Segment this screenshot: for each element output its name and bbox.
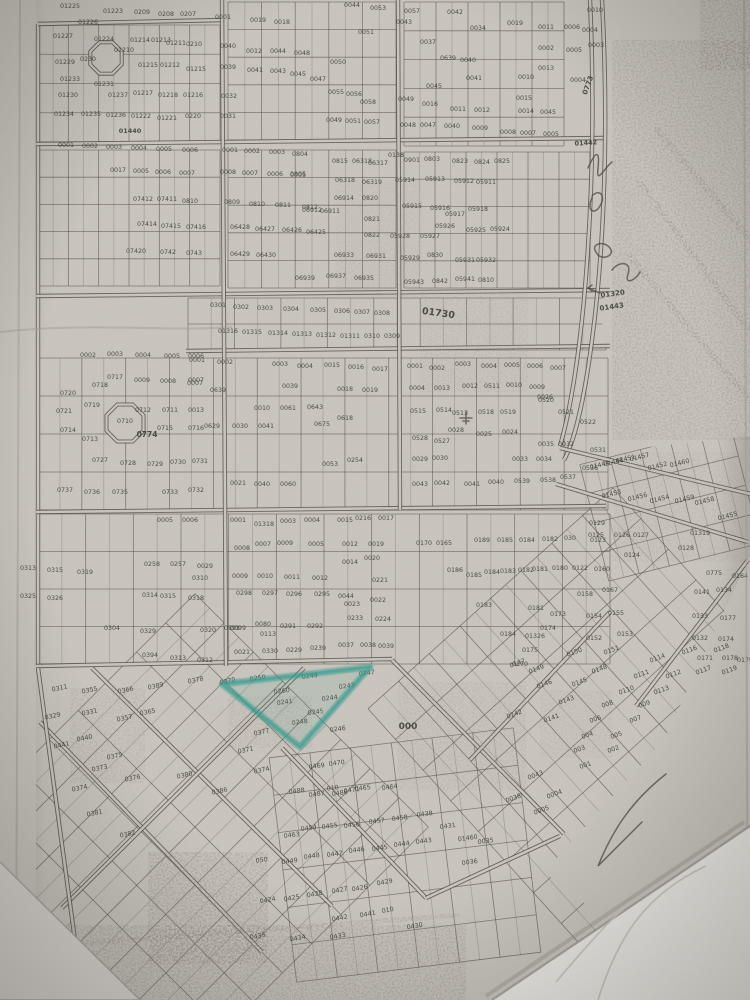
cadastral-map-photo: 0122501223020902080207000101227012260122… bbox=[0, 0, 750, 1000]
photo-vignette bbox=[0, 0, 750, 1000]
photo-grain-vignette bbox=[0, 0, 750, 1000]
photographed-map-document: 0122501223020902080207000101227012260122… bbox=[0, 0, 750, 1000]
